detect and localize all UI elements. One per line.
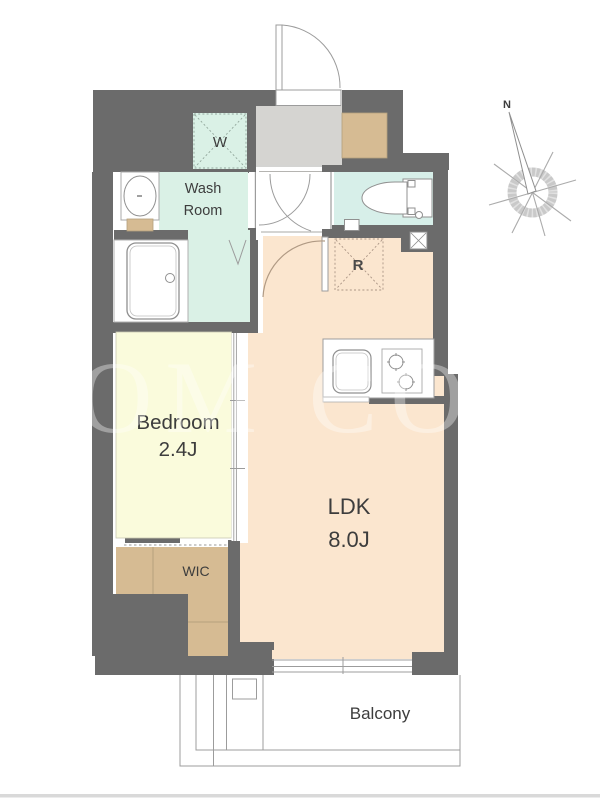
svg-text:W: W: [213, 134, 228, 151]
svg-text:Balcony: Balcony: [350, 704, 411, 723]
svg-text:WIC: WIC: [182, 563, 209, 579]
svg-text:Wash: Wash: [185, 181, 222, 197]
svg-text:OM COPY: OM COPY: [78, 341, 600, 455]
svg-text:R: R: [353, 257, 364, 274]
svg-text:Room: Room: [184, 203, 223, 219]
svg-text:LDK: LDK: [328, 494, 371, 519]
svg-text:8.0J: 8.0J: [328, 527, 370, 552]
svg-text:N: N: [503, 99, 511, 111]
